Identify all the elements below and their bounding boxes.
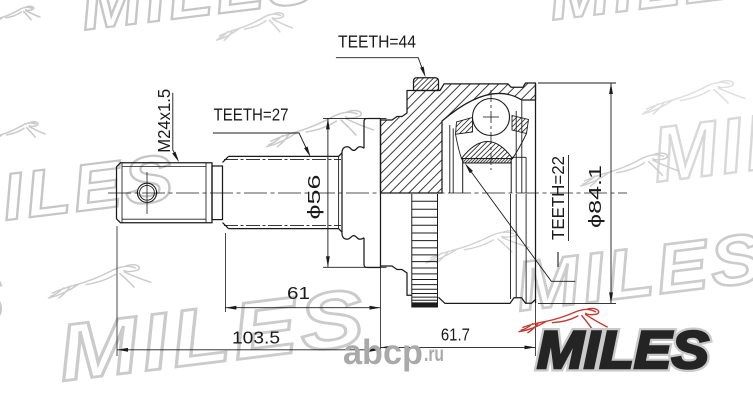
svg-text:61: 61 (287, 283, 310, 303)
svg-text:103.5: 103.5 (232, 328, 280, 348)
svg-text:TEETH=44: TEETH=44 (338, 32, 416, 52)
svg-text:abcp: abcp (343, 333, 423, 372)
svg-text:.ru: .ru (424, 343, 444, 366)
svg-text:TEETH=27: TEETH=27 (214, 105, 289, 125)
svg-text:MILES: MILES (537, 321, 709, 380)
svg-text:M24x1.5: M24x1.5 (154, 89, 174, 153)
svg-text:ϕ56: ϕ56 (304, 175, 324, 220)
svg-text:ϕ84.1: ϕ84.1 (585, 165, 605, 228)
svg-text:61.7: 61.7 (441, 325, 470, 345)
svg-text:TEETH=22: TEETH=22 (548, 156, 568, 240)
